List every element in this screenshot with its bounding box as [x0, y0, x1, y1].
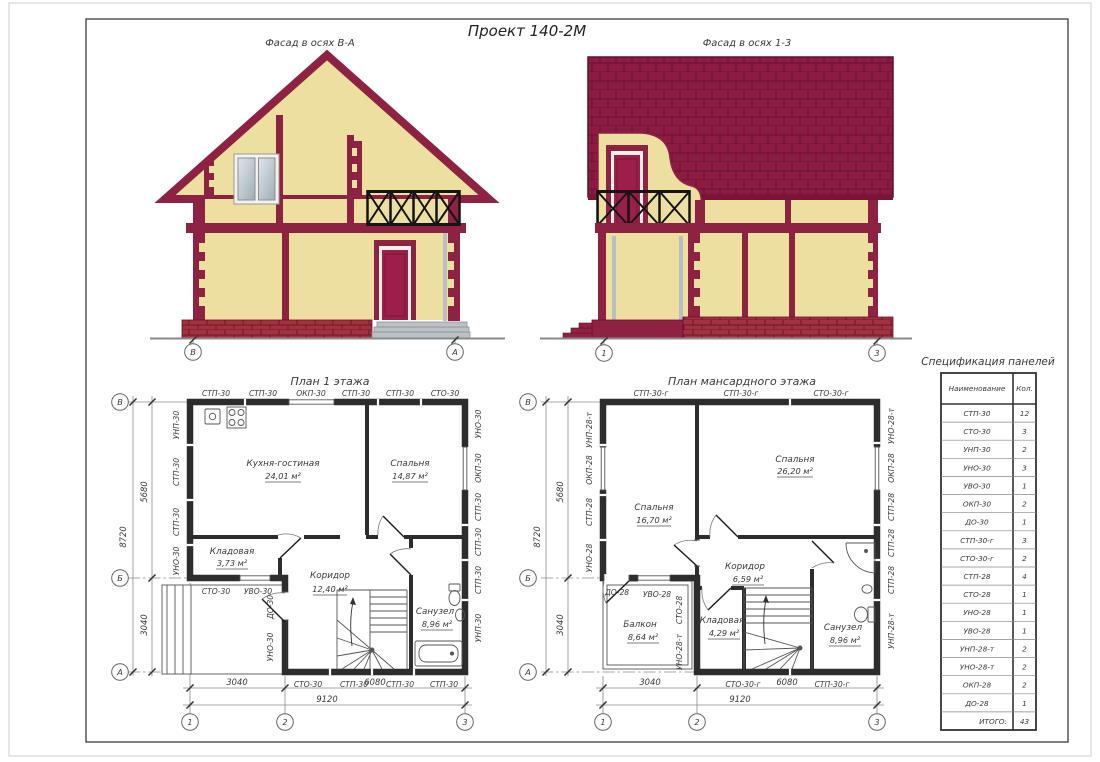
panel-spec-table: Спецификация панелей Наименование Кол. С… [921, 356, 1055, 730]
spec-cell: ДО-30 [964, 518, 989, 527]
spec-cell: СТО-30 [963, 427, 991, 436]
panel-label: ДО-30 [266, 595, 275, 620]
spec-cell: УНО-28 [963, 608, 991, 617]
spec-cell: СТО-30-г [960, 554, 994, 563]
room-name: Балкон [623, 620, 657, 630]
spec-cell: 1 [1022, 699, 1027, 708]
panel-label: УВО-30 [244, 587, 272, 596]
panel-label: УНО-28-т [887, 407, 896, 443]
plan-title: План 1 этажа [290, 375, 369, 388]
spec-cell: 2 [1022, 644, 1027, 653]
facade-window [234, 154, 279, 204]
spec-cell: УВО-28 [963, 626, 990, 635]
room-name: Спальня [775, 455, 815, 465]
spec-cell: 3 [1022, 536, 1027, 545]
panel-label: СТО-30-г [813, 389, 849, 398]
dim-label: 9120 [729, 694, 750, 704]
dim-label: 3040 [639, 677, 660, 687]
spec-cell: 1 [1022, 608, 1027, 617]
entry-door [374, 240, 416, 320]
spec-cell: 1 [1022, 518, 1027, 527]
spec-cell: 2 [1022, 500, 1027, 509]
room-area: 12,40 м² [312, 584, 348, 594]
panel-label: СТП-30 [202, 389, 230, 398]
porch-steps [372, 322, 470, 338]
downpipe [443, 233, 447, 321]
spec-cell: СТО-28 [963, 590, 991, 599]
spec-cell: ДО-28 [964, 699, 989, 708]
spec-cell: 1 [1022, 626, 1027, 635]
axis-bubble: Б [525, 573, 531, 583]
panel-label: СТП-30-г [724, 389, 760, 398]
axis-bubble: В [525, 397, 531, 407]
spec-cell: УНО-28-т [960, 663, 995, 672]
dim-label: 3040 [139, 614, 149, 635]
panel-label: СТП-28 [887, 566, 896, 594]
spec-cell: СТП-30-г [960, 536, 994, 545]
axis-bubble: А [451, 347, 458, 357]
room-name: Кладовая [700, 616, 745, 626]
panel-label: СТП-28 [585, 498, 594, 526]
axis-bubble: В [190, 347, 196, 357]
spec-cell: 3 [1022, 463, 1027, 472]
spec-header: Кол. [1016, 384, 1033, 393]
spec-header: Наименование [949, 384, 1006, 393]
downpipe [612, 236, 616, 320]
facade-13: Фасад в осях 1-3 1 3 [540, 38, 912, 361]
room-name: Коридор [725, 562, 765, 572]
spec-cell: 2 [1022, 681, 1027, 690]
panel-label: УНП-28-т [887, 613, 896, 649]
panel-label: СТО-30 [431, 389, 459, 398]
side-steps [563, 323, 592, 338]
facade-va: Фасад в осях В-А В [150, 38, 505, 360]
panel-label: СТП-30 [249, 389, 277, 398]
axis-bubble: 1 [601, 348, 606, 358]
spec-cell: УНП-30 [963, 445, 991, 454]
room-name: Кухня-гостиная [247, 459, 321, 469]
room-area: 8,64 м² [628, 632, 659, 642]
room-name: Спальня [390, 459, 430, 469]
axis-bubble: Б [117, 573, 123, 583]
panel-label: УНО-30 [266, 632, 275, 661]
panel-label: СТП-30-г [634, 389, 670, 398]
room-area: 26,20 м² [777, 466, 813, 476]
panel-label: СТО-30-г [725, 680, 761, 689]
dim-label: 8720 [118, 526, 128, 547]
facade-label: Фасад в осях 1-3 [703, 38, 792, 49]
panel-label: СТП-28 [887, 493, 896, 521]
axis-bubble: А [116, 667, 123, 677]
floor-band [595, 223, 881, 233]
spec-cell: СТП-28 [964, 572, 991, 581]
spec-cell: 3 [1022, 427, 1027, 436]
spec-cell: 4 [1022, 572, 1027, 581]
panel-label: ОКП-30 [296, 389, 326, 398]
spec-title: Спецификация панелей [921, 356, 1055, 368]
spec-cell: 1 [1022, 590, 1027, 599]
dim-label: 3040 [226, 677, 247, 687]
axis-bubble: А [524, 667, 531, 677]
spec-cell: УНП-28-т [960, 644, 995, 653]
axis-bubble: 2 [694, 717, 699, 727]
panel-label: СТП-30 [474, 528, 483, 556]
dim-label: 9120 [316, 694, 337, 704]
project-title: Проект 140-2М [468, 22, 586, 40]
spec-total-label: ИТОГО: [979, 717, 1007, 726]
lower-wall [193, 233, 460, 320]
panel-label: УНО-28 [585, 543, 594, 572]
room-area: 14,87 м² [392, 471, 428, 481]
dormer-door [606, 145, 648, 227]
panel-label: СТП-30 [172, 508, 181, 536]
spec-cell: ОКП-30 [963, 500, 992, 509]
axis-bubble: 2 [282, 717, 287, 727]
dim-label: 5680 [139, 481, 149, 502]
panel-label: СТП-30-г [815, 680, 851, 689]
axis-bubble: 1 [187, 717, 192, 727]
panel-label: УНП-30 [474, 614, 483, 643]
spec-cell: 1 [1022, 481, 1027, 490]
drawing-sheet: Проект 140-2М Фасад в осях В-А [0, 0, 1100, 762]
dim-label: 3040 [555, 614, 565, 635]
panel-label: УНП-28-т [585, 412, 594, 448]
panel-label: УНП-30 [172, 411, 181, 440]
room-name: Коридор [310, 571, 350, 581]
spec-cell: УНО-30 [963, 463, 991, 472]
spec-total-value: 43 [1020, 717, 1030, 726]
panel-label: ДО-28 [604, 588, 629, 597]
panel-label: ОКП-28 [585, 455, 594, 485]
room-area: 8,96 м² [422, 619, 453, 629]
panel-label: СТП-30 [342, 389, 370, 398]
dim-label: 6080 [776, 677, 797, 687]
room-name: Санузел [824, 623, 863, 633]
panel-label: СТО-30 [202, 587, 230, 596]
plan-title: План мансардного этажа [668, 375, 816, 388]
panel-label: СТП-28 [887, 529, 896, 557]
spec-cell: 2 [1022, 445, 1027, 454]
panel-label: УНО-30 [172, 546, 181, 575]
room-area: 8,96 м² [830, 635, 861, 645]
room-name: Спальня [634, 503, 674, 513]
axis-bubble: 1 [600, 717, 605, 727]
panel-label: СТП-30 [386, 389, 414, 398]
panel-label: УНО-28-т [675, 633, 684, 669]
spec-cell: 2 [1022, 663, 1027, 672]
spec-cell: СТП-30 [964, 409, 991, 418]
panel-label: СТП-30 [430, 680, 458, 689]
room-name: Кладовая [210, 547, 255, 557]
axis-bubble: 3 [874, 717, 879, 727]
spec-cell: ОКП-28 [963, 681, 992, 690]
axis-bubble: В [117, 397, 123, 407]
panel-label: СТП-30 [172, 458, 181, 486]
panel-label: ОКП-30 [474, 453, 483, 483]
dim-label: 6080 [364, 677, 385, 687]
plan-attic-floor: План мансардного этажа СТП-30-г СТП-30-г… [520, 375, 896, 730]
panel-label: УНО-30 [474, 409, 483, 438]
spec-cell: УВО-30 [963, 481, 990, 490]
facade-label: Фасад в осях В-А [265, 38, 355, 49]
dim-label: 8720 [532, 526, 542, 547]
plan-first-floor: План 1 этажа СТП-30 СТП-30 ОКП-30 СТП-30… [112, 375, 483, 730]
blueprint-svg: Проект 140-2М Фасад в осях В-А [0, 0, 1100, 762]
dim-label: 5680 [555, 481, 565, 502]
spec-cell: 12 [1020, 409, 1030, 418]
plinth-brick [683, 317, 893, 338]
room-area: 24,01 м² [265, 471, 301, 481]
room-area: 4,29 м² [709, 628, 740, 638]
panel-label: СТП-30 [386, 680, 414, 689]
room-name: Санузел [416, 607, 455, 617]
room-area: 16,70 м² [636, 515, 672, 525]
room-area: 3,73 м² [217, 558, 248, 568]
panel-label: СТП-30 [474, 566, 483, 594]
panel-label: СТО-30 [294, 680, 322, 689]
axis-bubble: 3 [462, 717, 467, 727]
plinth-brick [182, 320, 372, 338]
room-area: 6,59 м² [733, 574, 764, 584]
downpipe [679, 236, 683, 320]
panel-label: СТП-30 [474, 493, 483, 521]
lower-wall [598, 233, 878, 320]
axis-bubble: 3 [874, 348, 879, 358]
panel-label: ОКП-28 [887, 453, 896, 483]
spec-cell: 2 [1022, 554, 1027, 563]
panel-label: СТО-28 [675, 596, 684, 624]
panel-label: УВО-28 [643, 590, 671, 599]
